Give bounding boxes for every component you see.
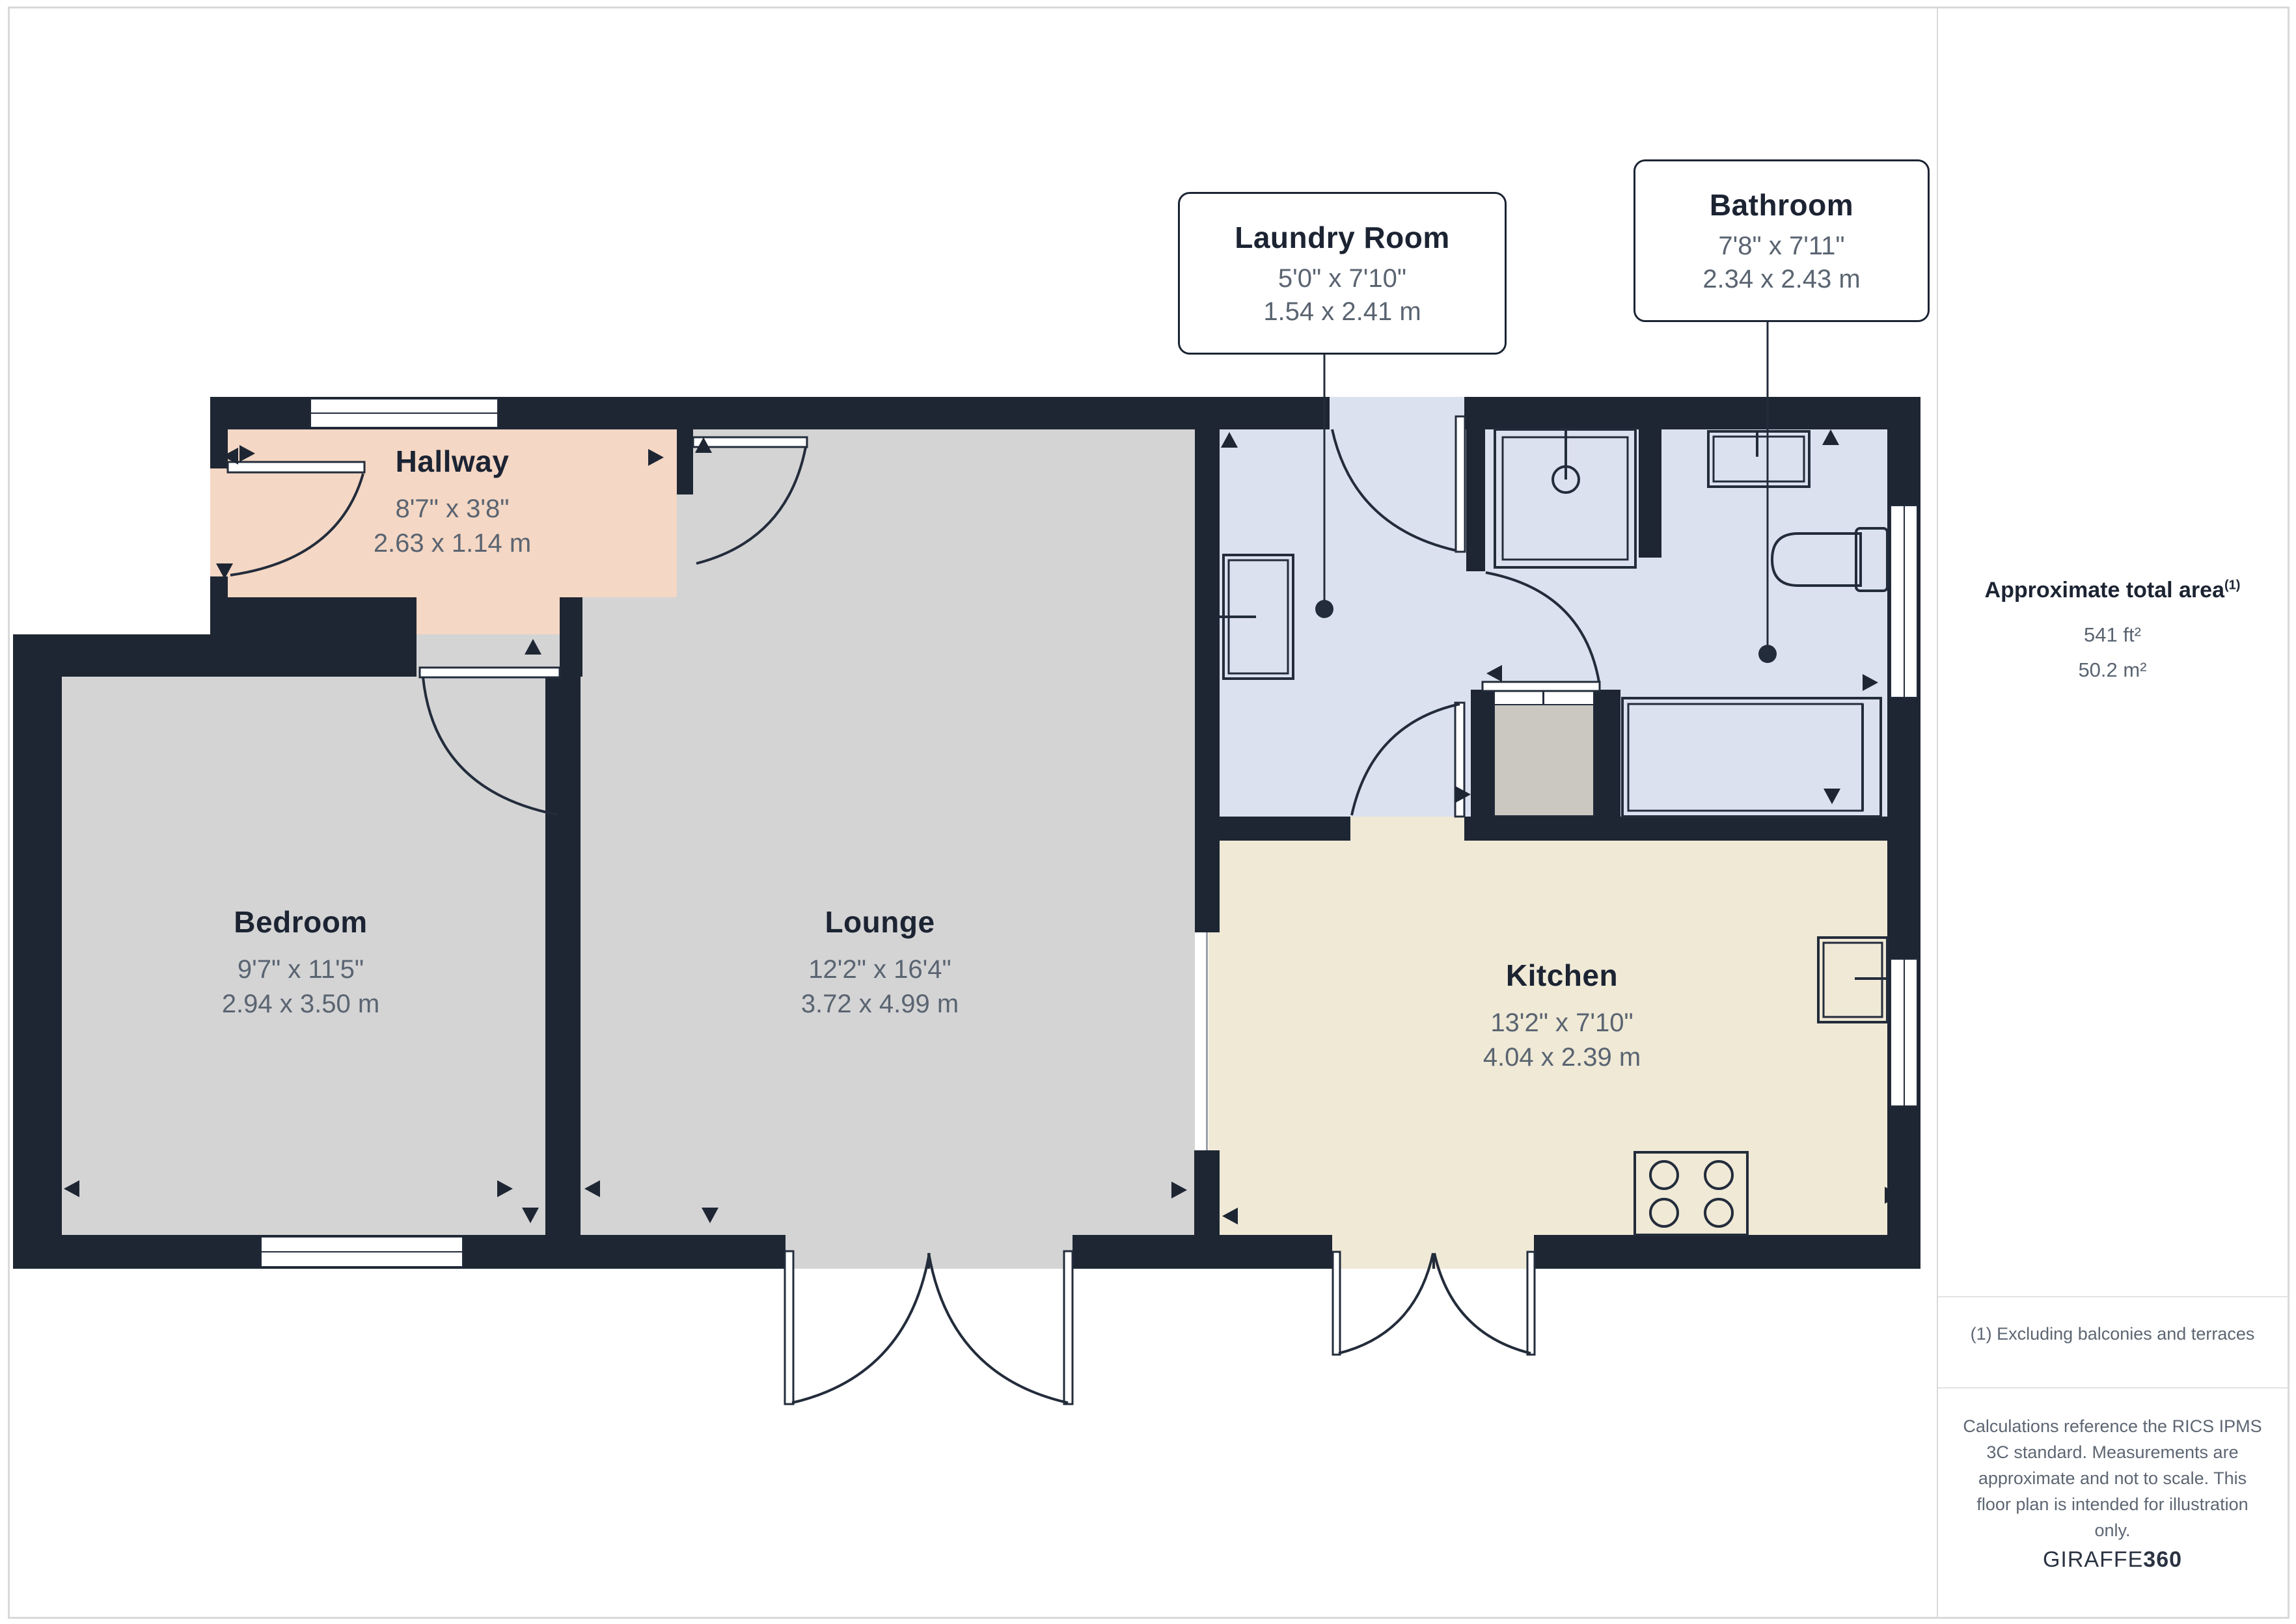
measure-arrow xyxy=(522,1208,539,1223)
measure-arrow xyxy=(1222,1208,1238,1225)
logo-text: GIRAFFE xyxy=(2043,1547,2143,1572)
measure-arrow xyxy=(223,448,238,465)
sidebar-divider xyxy=(1937,7,1938,1619)
room-label-bedroom: Bedroom 9'7" x 11'5" 2.94 x 3.50 m xyxy=(222,904,379,1019)
room-name: Bedroom xyxy=(222,904,379,940)
room-dims-metric: 4.04 x 2.39 m xyxy=(1483,1043,1641,1072)
room-dims-imperial: 7'8" x 7'11" xyxy=(1718,232,1844,261)
measure-arrow xyxy=(1885,1187,1900,1204)
total-area-m: 50.2 m² xyxy=(1937,658,2288,682)
plan-overlay xyxy=(0,0,2296,1624)
toilet-fixture xyxy=(1772,528,1887,591)
sidebar-divider-line xyxy=(1938,1296,2288,1297)
kitchen-sink-fixture xyxy=(1818,938,1887,1022)
laundry-kitchen-door xyxy=(1352,703,1464,817)
total-area-title-text: Approximate total area xyxy=(1985,578,2224,602)
measure-arrow xyxy=(239,445,255,462)
room-name: Kitchen xyxy=(1483,958,1641,993)
measure-arrow xyxy=(525,639,541,655)
measure-arrow xyxy=(1486,665,1502,682)
room-name: Hallway xyxy=(374,444,531,479)
room-label-lounge: Lounge 12'2" x 16'4" 3.72 x 4.99 m xyxy=(801,904,959,1019)
measure-arrow xyxy=(1171,1182,1187,1198)
measure-arrow xyxy=(1221,432,1238,448)
measure-arrow xyxy=(1822,429,1839,445)
hallway-lounge-door xyxy=(693,437,807,563)
sidebar-divider-line xyxy=(1938,1387,2288,1388)
footnote-text: (1) Excluding balconies and terraces xyxy=(1950,1321,2275,1347)
room-dims-metric: 2.94 x 3.50 m xyxy=(222,990,379,1019)
shower-fixture xyxy=(1495,429,1635,567)
measure-arrow xyxy=(695,437,712,453)
room-name: Bathroom xyxy=(1710,187,1853,223)
room-name: Lounge xyxy=(801,904,959,940)
room-label-kitchen: Kitchen 13'2" x 7'10" 4.04 x 2.39 m xyxy=(1483,958,1641,1072)
room-dims-imperial: 12'2" x 16'4" xyxy=(801,955,959,984)
room-dims-imperial: 13'2" x 7'10" xyxy=(1483,1008,1641,1038)
footnote-marker: (1) xyxy=(2224,578,2240,593)
measure-arrow xyxy=(1863,674,1878,691)
measure-arrow xyxy=(1824,789,1840,804)
measure-arrow xyxy=(584,1180,600,1197)
giraffe360-logo: GIRAFFE360 xyxy=(1937,1547,2288,1573)
callout-bathroom: Bathroom 7'8" x 7'11" 2.34 x 2.43 m xyxy=(1633,159,1930,322)
room-label-hallway: Hallway 8'7" x 3'8" 2.63 x 1.14 m xyxy=(374,444,531,558)
measure-arrow xyxy=(702,1208,718,1223)
callout-laundry: Laundry Room 5'0" x 7'10" 1.54 x 2.41 m xyxy=(1178,192,1507,355)
laundry-sink-fixture xyxy=(1220,555,1293,679)
measure-arrow xyxy=(648,449,664,466)
kitchen-double-doors xyxy=(1333,1252,1535,1355)
total-area-ft: 541 ft² xyxy=(1937,623,2288,647)
room-name: Laundry Room xyxy=(1235,220,1450,255)
disclaimer-text: Calculations reference the RICS IPMS 3C … xyxy=(1960,1413,2265,1543)
lounge-french-doors xyxy=(785,1251,1073,1404)
entrance-door xyxy=(228,462,364,575)
measure-arrow xyxy=(1455,786,1471,803)
room-dims-metric: 3.72 x 4.99 m xyxy=(801,990,959,1019)
room-dims-metric: 1.54 x 2.41 m xyxy=(1263,297,1421,327)
room-dims-metric: 2.63 x 1.14 m xyxy=(374,529,531,558)
laundry-exterior-door xyxy=(1332,416,1465,552)
stove-fixture xyxy=(1635,1152,1747,1235)
room-dims-imperial: 5'0" x 7'10" xyxy=(1278,264,1406,293)
bedroom-door xyxy=(420,668,560,815)
measure-arrow xyxy=(497,1180,513,1197)
floorplan-page: Hallway 8'7" x 3'8" 2.63 x 1.14 m Bedroo… xyxy=(0,0,2296,1624)
logo-suffix: 360 xyxy=(2143,1547,2182,1572)
bathroom-leader-line xyxy=(1758,319,1777,663)
measure-arrow xyxy=(64,1180,79,1197)
total-area-title: Approximate total area(1) xyxy=(1937,578,2288,603)
laundry-leader-line xyxy=(1315,351,1333,618)
room-dims-imperial: 9'7" x 11'5" xyxy=(222,955,379,984)
measure-arrow xyxy=(216,563,233,579)
room-dims-imperial: 8'7" x 3'8" xyxy=(374,494,531,524)
room-dims-metric: 2.34 x 2.43 m xyxy=(1702,265,1860,294)
bathroom-sink-fixture xyxy=(1708,431,1809,487)
bathtub-fixture xyxy=(1622,698,1881,817)
